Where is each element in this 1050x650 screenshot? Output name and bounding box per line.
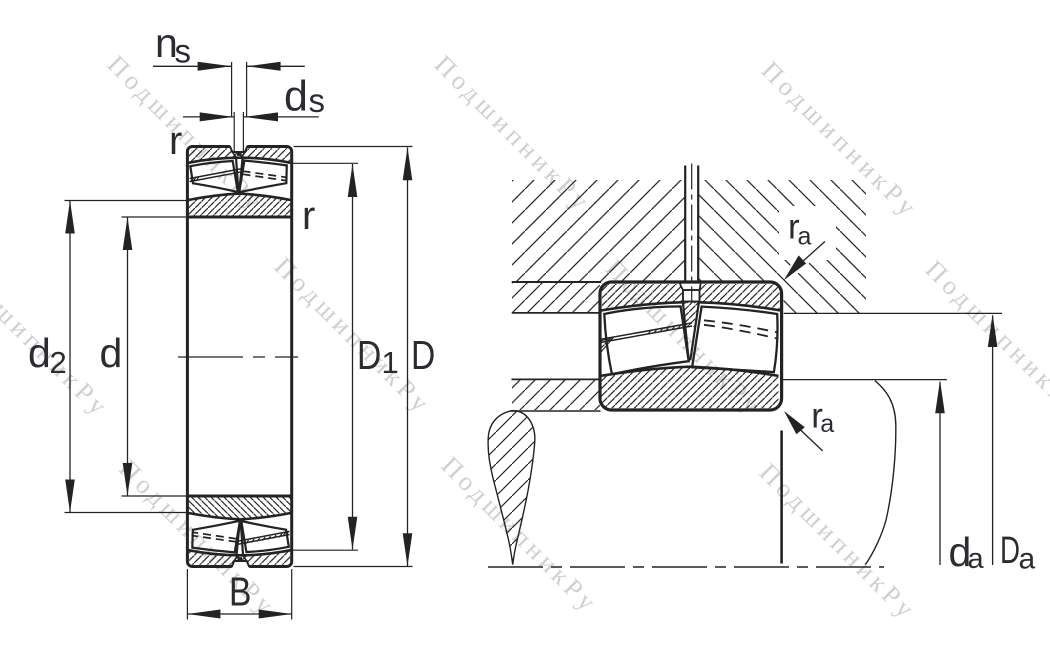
svg-text:1: 1 — [382, 345, 399, 380]
svg-text:a: a — [798, 223, 812, 251]
svg-text:a: a — [820, 410, 834, 438]
svg-text:d: d — [100, 330, 123, 376]
svg-text:D: D — [357, 332, 381, 378]
svg-text:2: 2 — [50, 345, 67, 380]
svg-text:B: B — [229, 568, 251, 614]
svg-text:r: r — [302, 194, 315, 238]
svg-text:d: d — [28, 330, 51, 376]
svg-text:d: d — [284, 73, 308, 121]
svg-text:s: s — [175, 32, 192, 69]
svg-text:r: r — [169, 119, 182, 163]
svg-text:D: D — [1000, 530, 1020, 572]
svg-text:s: s — [309, 82, 326, 119]
svg-text:a: a — [1019, 543, 1036, 576]
svg-text:D: D — [411, 332, 435, 378]
svg-text:a: a — [968, 543, 985, 575]
